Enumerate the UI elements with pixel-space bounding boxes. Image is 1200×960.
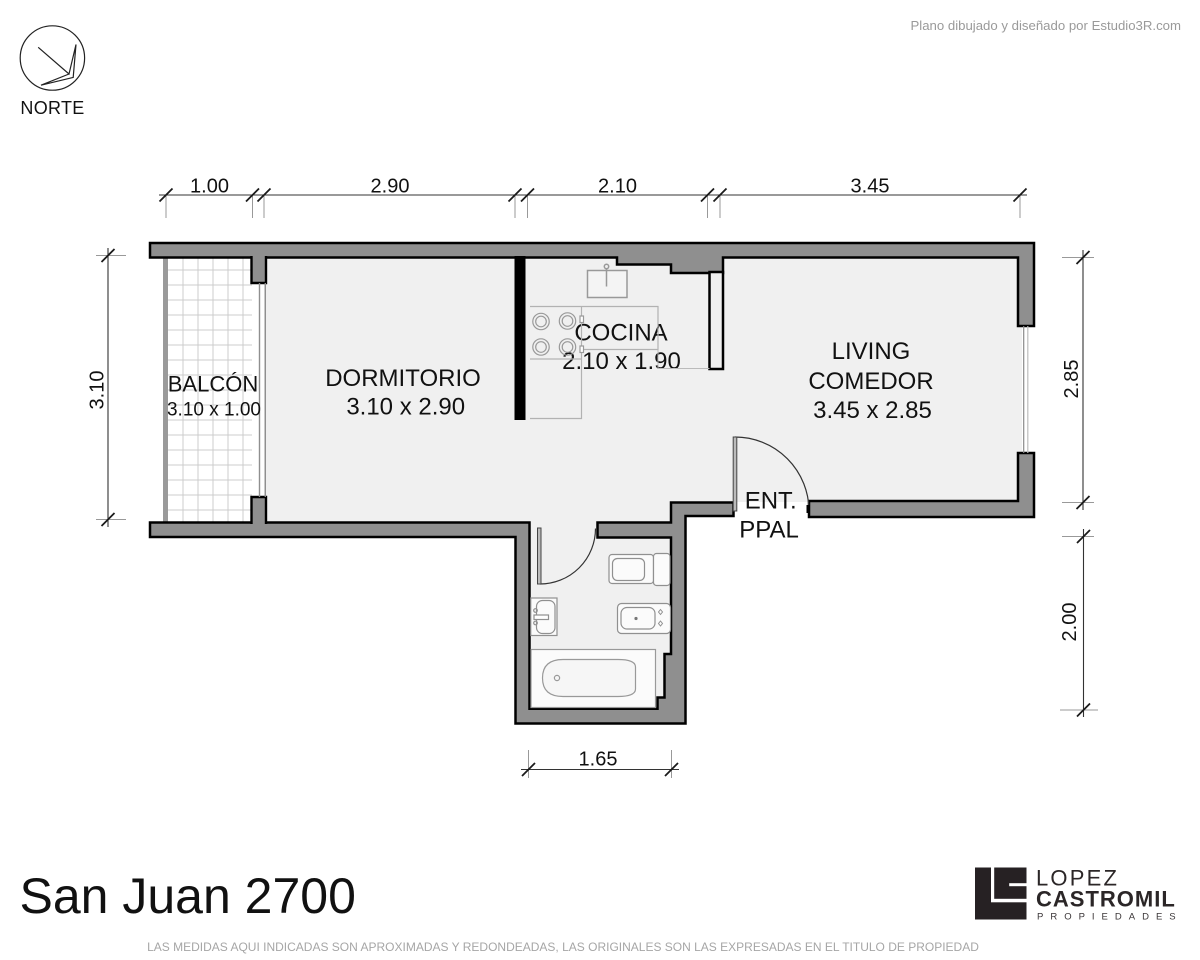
svg-text:2.10: 2.10 <box>598 176 637 198</box>
svg-text:COMEDOR: COMEDOR <box>808 368 933 395</box>
svg-text:NORTE: NORTE <box>20 98 84 118</box>
svg-text:3.10: 3.10 <box>87 371 109 410</box>
svg-text:3.10 x 1.00: 3.10 x 1.00 <box>167 400 261 421</box>
svg-text:2.00: 2.00 <box>1059 603 1081 642</box>
svg-text:2.85: 2.85 <box>1061 360 1083 399</box>
svg-text:3.10 x 2.90: 3.10 x 2.90 <box>346 394 465 421</box>
svg-text:1.65: 1.65 <box>579 749 618 771</box>
svg-text:San Juan 2700: San Juan 2700 <box>20 868 356 924</box>
svg-text:LAS MEDIDAS AQUI INDICADAS SON: LAS MEDIDAS AQUI INDICADAS SON APROXIMAD… <box>147 940 979 954</box>
svg-text:BALCÓN: BALCÓN <box>168 372 258 397</box>
svg-text:1.00: 1.00 <box>190 176 229 198</box>
svg-text:COCINA: COCINA <box>574 320 667 347</box>
svg-text:ENT.: ENT. <box>745 488 797 515</box>
svg-text:CASTROMIL: CASTROMIL <box>1036 887 1176 912</box>
svg-text:PROPIEDADES: PROPIEDADES <box>1037 912 1183 923</box>
svg-text:Plano dibujado y diseñado por: Plano dibujado y diseñado por Estudio3R.… <box>910 18 1181 33</box>
svg-text:3.45: 3.45 <box>851 176 890 198</box>
svg-text:2.90: 2.90 <box>371 176 410 198</box>
svg-text:3.45 x 2.85: 3.45 x 2.85 <box>813 397 932 424</box>
svg-text:LIVING: LIVING <box>832 338 911 365</box>
svg-text:PPAL: PPAL <box>739 517 799 544</box>
svg-text:DORMITORIO: DORMITORIO <box>325 365 481 392</box>
